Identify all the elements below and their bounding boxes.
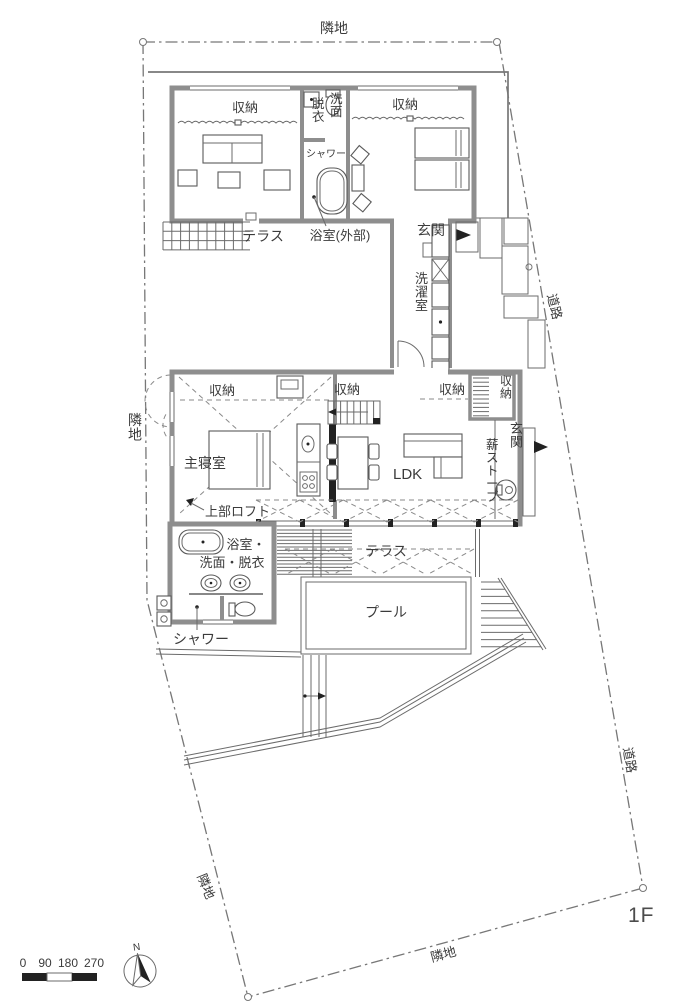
neighbor-left-label: 隣地 (128, 412, 142, 443)
bath-label: 浴室・ (226, 537, 265, 552)
floor-plan-svg: 隣地 隣地 隣地 隣地 道路 道路 1F 収納 収納 脱衣 洗面 シャワー テラ… (0, 0, 680, 1001)
deck-hatch (277, 530, 352, 574)
washstand-label: 洗面 (330, 92, 343, 119)
neighbor-top-label: 隣地 (320, 20, 348, 36)
pool-label: プール (365, 604, 407, 620)
kitchen-island (297, 424, 320, 496)
wood-stove (496, 480, 516, 500)
garden-path (156, 649, 326, 737)
north-arrow: N (120, 940, 158, 989)
scale-tick-180: 180 (58, 956, 78, 970)
entrance-main-label: 玄関 (510, 421, 523, 450)
storage-label-mid: 収納 (334, 382, 360, 397)
storage-label-guest1: 収納 (232, 100, 258, 115)
storage-label-master: 収納 (209, 383, 235, 398)
dressing-label: 脱衣 (312, 96, 325, 124)
terrace-upper-label: テラス (242, 228, 284, 244)
entrance-upper-label: 玄関 (417, 222, 445, 238)
main-entrance (523, 428, 548, 516)
laundry-label: 洗濯室 (415, 271, 428, 313)
loft-label: 上部ロフト (205, 504, 270, 519)
master-bedroom-label: 主寝室 (184, 455, 226, 471)
scale-bar: 0 90 180 270 (20, 956, 105, 981)
scale-tick-270: 270 (84, 956, 104, 970)
shower-lower-label: シャワー (173, 631, 229, 647)
floor-label: 1F (628, 904, 655, 927)
southeast-stairs (476, 524, 547, 650)
north-label: N (132, 942, 141, 954)
scale-tick-90: 90 (38, 956, 52, 970)
wood-stove-label: 薪ストーブ (486, 438, 499, 504)
floor-plan-canvas: 隣地 隣地 隣地 隣地 道路 道路 1F 収納 収納 脱衣 洗面 シャワー テラ… (0, 0, 680, 1001)
wash-dressing-label: 洗面・脱衣 (199, 555, 264, 570)
storage-label-guest2: 収納 (392, 97, 418, 112)
neighbor-bottom-left-label: 隣地 (194, 872, 218, 902)
terrace-lower-label: テラス (365, 543, 407, 559)
approach-steps (456, 218, 545, 368)
storage-label-closet: 収納 (500, 374, 512, 400)
ldk-label: LDK (393, 466, 422, 483)
neighbor-bottom-label: 隣地 (429, 944, 458, 965)
storage-label-right: 収納 (439, 382, 465, 397)
shower-upper-label: シャワー (306, 149, 346, 160)
scale-tick-0: 0 (20, 956, 27, 970)
road-upper-label: 道路 (544, 292, 565, 321)
upper-terrace-grid (163, 222, 250, 250)
outdoor-bath-label: 浴室(外部) (310, 228, 371, 243)
